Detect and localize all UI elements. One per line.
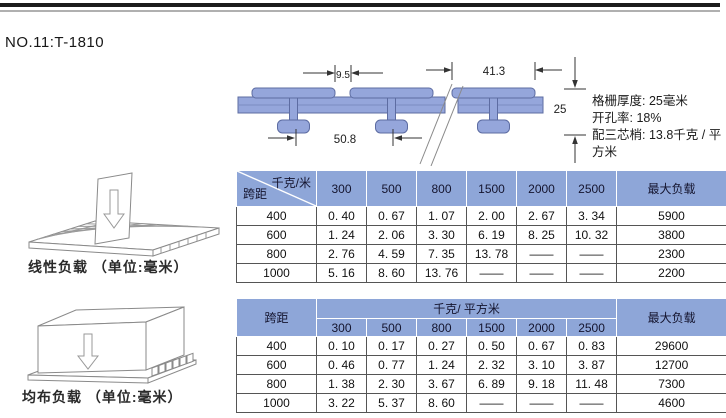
table-row: 10003. 225. 378. 60——————4600 (237, 394, 726, 413)
load-cell: 3. 34 (567, 207, 617, 226)
max-load-cell: 3800 (617, 226, 726, 245)
load-cell: 3. 10 (517, 356, 567, 375)
load-cell: 1. 24 (317, 226, 367, 245)
load-column-header: 300 (317, 171, 367, 207)
load-cell: 13. 78 (467, 245, 517, 264)
load-column-header: 1500 (467, 319, 517, 337)
dim-thickness: 25 (554, 104, 567, 116)
uniform-load-caption: 均布负载 （单位:毫米） (22, 387, 183, 407)
unit-header: 千克/ 平方米 (317, 299, 617, 319)
load-cell: —— (567, 264, 617, 283)
spec-weight: 配三芯梢: 13.8千克 / 平方米 (592, 127, 726, 161)
top-rule-thin (0, 10, 720, 12)
corner-header-cell: 千克/米 跨距 (237, 171, 317, 207)
load-cell: 0. 67 (367, 207, 417, 226)
max-load-cell: 29600 (617, 337, 726, 356)
load-cell: —— (517, 245, 567, 264)
table-row: 4000. 100. 170. 270. 500. 670. 8329600 (237, 337, 726, 356)
load-cell: 0. 77 (367, 356, 417, 375)
load-cell: —— (567, 245, 617, 264)
load-column-header: 2500 (567, 171, 617, 207)
catalog-page: NO.11:T-1810 (0, 0, 726, 418)
span-cell: 800 (237, 375, 317, 394)
load-column-header: 500 (367, 319, 417, 337)
load-cell: 3. 87 (567, 356, 617, 375)
table-row: 8001. 382. 303. 676. 899. 1811. 487300 (237, 375, 726, 394)
load-cell: 3. 30 (417, 226, 467, 245)
load-cell: 2. 32 (467, 356, 517, 375)
max-load-cell: 12700 (617, 356, 726, 375)
header-row: 跨距 千克/ 平方米 最大负载 (237, 299, 726, 319)
linear-load-caption: 线性负载 （单位:毫米） (28, 257, 189, 277)
span-cell: 1000 (237, 264, 317, 283)
grating-profile (238, 88, 543, 133)
table-row: 10005. 168. 6013. 76——————2200 (237, 264, 726, 283)
dim-top-gap: 9.5 (336, 70, 350, 81)
load-cell: 5. 16 (317, 264, 367, 283)
load-cell: 9. 18 (517, 375, 567, 394)
cross-section-diagram: 9.5 41.3 25 50.8 (230, 56, 586, 166)
corner-unit-label: 千克/米 (272, 174, 311, 191)
span-cell: 400 (237, 337, 317, 356)
span-cell: 600 (237, 356, 317, 375)
load-cell: 8. 25 (517, 226, 567, 245)
load-cell: 0. 67 (517, 337, 567, 356)
load-cell: 6. 19 (467, 226, 517, 245)
header-row: 千克/米 跨距 300 500 800 1500 2000 2500 最大负载 (237, 171, 726, 207)
load-cell: 1. 07 (417, 207, 467, 226)
span-cell: 400 (237, 207, 317, 226)
max-load-cell: 4600 (617, 394, 726, 413)
load-cell: 2. 67 (517, 207, 567, 226)
table-row: 6001. 242. 063. 306. 198. 2510. 323800 (237, 226, 726, 245)
load-cell: 3. 67 (417, 375, 467, 394)
spec-thickness: 格栅厚度: 25毫米 (592, 93, 726, 110)
span-cell: 600 (237, 226, 317, 245)
load-cell: 2. 30 (367, 375, 417, 394)
span-header: 跨距 (237, 299, 317, 337)
span-cell: 1000 (237, 394, 317, 413)
load-cell: 8. 60 (367, 264, 417, 283)
load-column-header: 500 (367, 171, 417, 207)
linear-load-pictogram (15, 168, 225, 260)
load-cell: —— (467, 264, 517, 283)
load-cell: 3. 22 (317, 394, 367, 413)
span-cell: 800 (237, 245, 317, 264)
load-cell: 1. 38 (317, 375, 367, 394)
max-load-cell: 5900 (617, 207, 726, 226)
load-column-header: 2000 (517, 171, 567, 207)
max-load-cell: 2300 (617, 245, 726, 264)
load-cell: —— (517, 264, 567, 283)
load-cell: 2. 76 (317, 245, 367, 264)
load-cell: —— (517, 394, 567, 413)
dim-pitch: 50.8 (334, 134, 356, 146)
load-column-header: 800 (417, 319, 467, 337)
corner-span-label: 跨距 (243, 185, 267, 202)
max-load-header: 最大负载 (617, 171, 726, 207)
load-cell: 0. 17 (367, 337, 417, 356)
top-rule-thick (0, 3, 720, 7)
max-load-cell: 7300 (617, 375, 726, 394)
load-cell: 0. 50 (467, 337, 517, 356)
load-column-header: 2500 (567, 319, 617, 337)
load-column-header: 300 (317, 319, 367, 337)
linear-load-table: 千克/米 跨距 300 500 800 1500 2000 2500 最大负载 … (236, 170, 726, 283)
uniform-load-table: 跨距 千克/ 平方米 最大负载 300 500 800 1500 2000 25… (236, 298, 726, 413)
load-cell: 2. 00 (467, 207, 517, 226)
load-cell: 0. 46 (317, 356, 367, 375)
load-column-header: 800 (417, 171, 467, 207)
table-row: 4000. 400. 671. 072. 002. 673. 345900 (237, 207, 726, 226)
load-cell: 0. 40 (317, 207, 367, 226)
load-cell: 5. 37 (367, 394, 417, 413)
spec-open-rate: 开孔率: 18% (592, 110, 726, 127)
max-load-header: 最大负载 (617, 299, 726, 337)
load-cell: 13. 76 (417, 264, 467, 283)
load-cell: —— (467, 394, 517, 413)
page-title: NO.11:T-1810 (5, 34, 104, 51)
table-row: 6000. 460. 771. 242. 323. 103. 8712700 (237, 356, 726, 375)
load-column-header: 2000 (517, 319, 567, 337)
max-load-cell: 2200 (617, 264, 726, 283)
uniform-load-pictogram (20, 298, 220, 386)
load-cell: —— (567, 394, 617, 413)
load-cell: 1. 24 (417, 356, 467, 375)
load-cell: 6. 89 (467, 375, 517, 394)
load-cell: 0. 83 (567, 337, 617, 356)
table-row: 8002. 764. 597. 3513. 78————2300 (237, 245, 726, 264)
load-cell: 8. 60 (417, 394, 467, 413)
load-cell: 4. 59 (367, 245, 417, 264)
load-cell: 11. 48 (567, 375, 617, 394)
dim-flange-width: 41.3 (483, 66, 505, 78)
load-column-header: 1500 (467, 171, 517, 207)
load-cell: 10. 32 (567, 226, 617, 245)
load-cell: 0. 27 (417, 337, 467, 356)
load-cell: 2. 06 (367, 226, 417, 245)
spec-text-block: 格栅厚度: 25毫米 开孔率: 18% 配三芯梢: 13.8千克 / 平方米 (592, 93, 726, 161)
load-cell: 0. 10 (317, 337, 367, 356)
load-cell: 7. 35 (417, 245, 467, 264)
